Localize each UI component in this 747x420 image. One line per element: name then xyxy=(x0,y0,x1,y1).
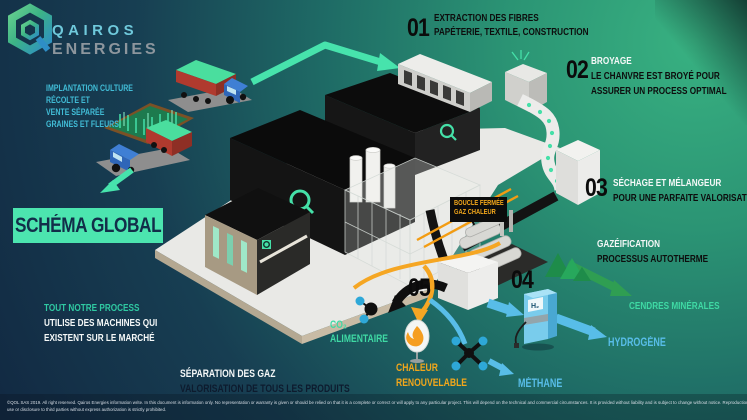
step-01-desc: PAPÉTERIE, TEXTILE, CONSTRUCTION xyxy=(434,26,589,38)
hydrogen-pump-icon: H₂ xyxy=(514,289,557,351)
separation-subtitle: VALORISATION DE TOUS LES PRODUITS xyxy=(180,383,350,396)
note-line-2: UTILISE DES MACHINES QUI xyxy=(44,317,157,329)
step-02-desc-1: LE CHANVRE EST BROYÉ POUR xyxy=(591,70,720,82)
corner-vignette xyxy=(655,0,747,125)
brand-subname: ENERGIES xyxy=(52,41,159,59)
step-02-title: BROYAGE xyxy=(591,55,632,67)
infographic-canvas: H₂ QAIROS ENERGIES IMPLANTATION CULTURE … xyxy=(0,0,747,420)
output-methane-label: MÉTHANE xyxy=(518,378,562,391)
output-hydrogene-label: HYDROGÈNE xyxy=(608,337,666,350)
gazeification-title: GAZÉIFICATION xyxy=(597,238,660,250)
culture-line-1: IMPLANTATION CULTURE xyxy=(46,83,133,93)
methane-molecule-icon xyxy=(452,337,488,371)
step-03-number: 03 xyxy=(585,174,607,203)
note-line-3: EXISTENT SUR LE MARCHÉ xyxy=(44,332,155,344)
gazeification-subtitle: PROCESSUS AUTOTHERME xyxy=(597,253,708,265)
footer-legal-line-2: use or disclosure to third parties witho… xyxy=(7,407,166,412)
output-cendres-label: CENDRES MINÉRALES xyxy=(629,300,720,312)
step-03-desc: POUR UNE PARFAITE VALORISATION xyxy=(613,192,747,204)
step-02-number: 02 xyxy=(566,56,588,85)
step-04-number: 04 xyxy=(511,266,533,295)
footer-legal-line-1: ©QOL SAS 2019. All right reserved. Qairo… xyxy=(7,400,747,405)
brand-name: QAIROS xyxy=(52,22,138,39)
culture-line-4: GRAINES ET FLEURS xyxy=(46,119,119,129)
qairos-logo-icon xyxy=(12,8,48,50)
output-chaleur-label-1: CHALEUR xyxy=(396,362,438,375)
step-05-number: 05 xyxy=(408,274,430,303)
output-chaleur-label-2: RENOUVELABLE xyxy=(396,377,467,390)
badge-line-2: GAZ CHALEUR xyxy=(454,208,495,217)
step-02-desc-2: ASSURER UN PROCESS OPTIMAL xyxy=(591,85,727,97)
output-co2-label: CO₂ xyxy=(330,319,347,332)
schema-global-banner: SCHÉMA GLOBAL xyxy=(13,208,163,243)
badge-line-1: BOUCLE FERMÉE xyxy=(454,199,495,208)
pump-screen-label: H₂ xyxy=(531,303,539,310)
closed-loop-badge: BOUCLE FERMÉE GAZ CHALEUR xyxy=(450,197,507,222)
step-03-title: SÉCHAGE ET MÉLANGEUR xyxy=(613,177,721,189)
culture-line-3: VENTE SÉPARÉE xyxy=(46,107,104,117)
culture-line-2: RÉCOLTE ET xyxy=(46,95,90,105)
separation-title: SÉPARATION DES GAZ xyxy=(180,368,276,381)
note-highlight: TOUT NOTRE PROCESS xyxy=(44,302,139,314)
flame-icon xyxy=(405,320,429,363)
page-title: SCHÉMA GLOBAL xyxy=(15,214,161,238)
step-01-number: 01 xyxy=(407,14,429,43)
truck-trailer-icon xyxy=(168,60,252,112)
transport-arrow-icon xyxy=(252,45,400,82)
output-co2-sub-label: ALIMENTAIRE xyxy=(330,333,388,346)
step-01-title: EXTRACTION DES FIBRES xyxy=(434,12,539,24)
